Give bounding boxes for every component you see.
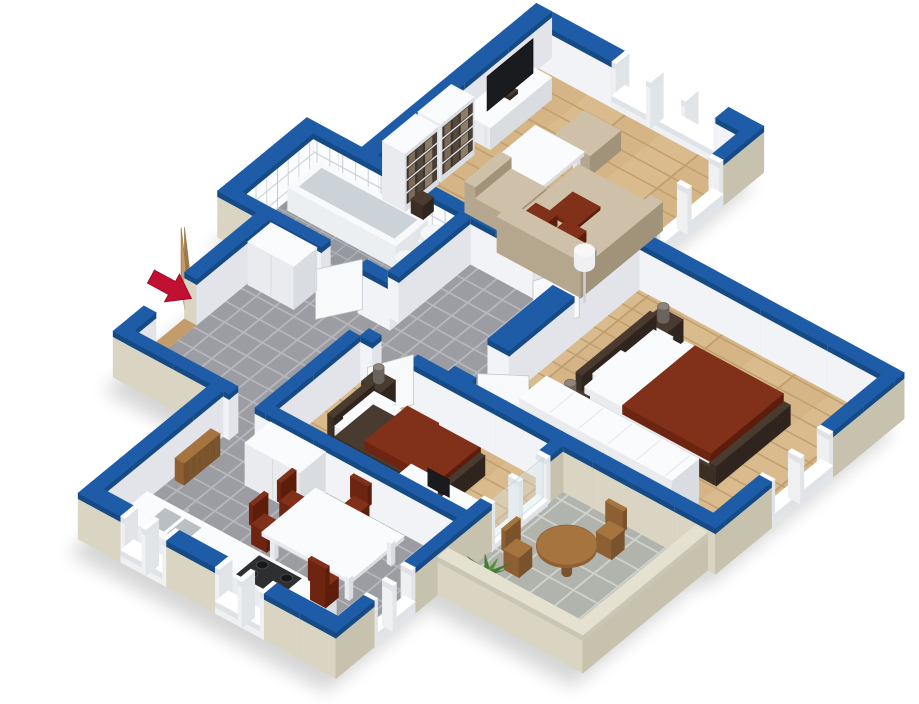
- stove-burner: [281, 574, 293, 582]
- table-lamp: [658, 303, 669, 311]
- books: [470, 104, 473, 114]
- table-lamp: [565, 379, 576, 387]
- table-lamp: [373, 364, 384, 371]
- books: [470, 129, 473, 139]
- armchair: [465, 181, 476, 218]
- dining-table-leg: [345, 576, 349, 601]
- books: [470, 141, 473, 151]
- dining-table-leg: [387, 541, 391, 566]
- faucet: [185, 508, 189, 512]
- double-bed-frame: [710, 463, 716, 486]
- books: [434, 133, 437, 143]
- floorplan-canvas: [0, 0, 919, 704]
- stove-burner: [256, 561, 268, 569]
- dining-table-leg: [391, 541, 395, 566]
- bathroom-door: [316, 259, 363, 319]
- chair-back: [623, 508, 626, 532]
- books: [434, 158, 437, 168]
- books: [434, 146, 437, 156]
- floor-lamp: [574, 244, 595, 258]
- dining-table-leg: [349, 575, 353, 600]
- round-table: [536, 525, 597, 565]
- chair-back: [326, 566, 329, 590]
- floorplan-image: [0, 0, 919, 704]
- chair-back: [368, 483, 371, 507]
- books: [470, 116, 473, 126]
- books: [434, 171, 437, 181]
